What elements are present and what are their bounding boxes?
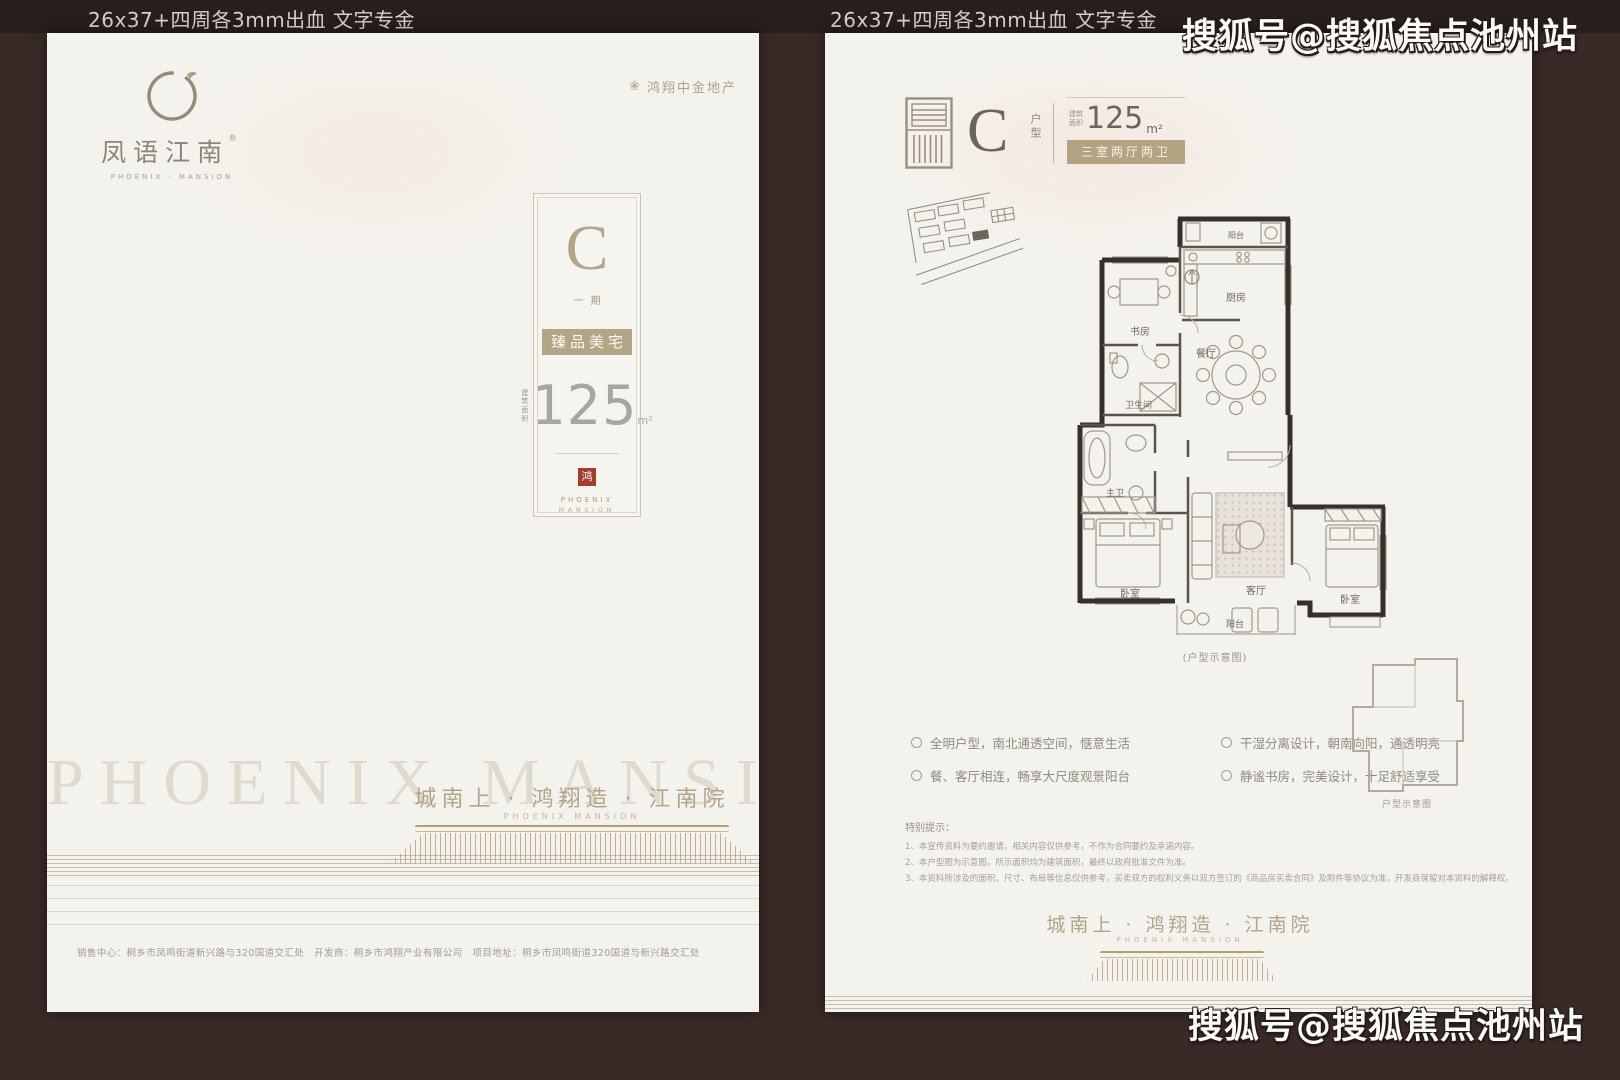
area-figure: 建筑 面积 125 m² — [534, 379, 640, 433]
brand-name: 凤语江南® — [92, 133, 252, 169]
floor-plan-caption: (户型示意图) — [1040, 649, 1390, 664]
roof-beam — [1100, 951, 1263, 958]
unit-type-label: 户型 — [1027, 113, 1043, 141]
area-unit: m² — [1146, 122, 1163, 136]
header-area-block: 建筑 面积 125 m² 三室两厅两卫 — [1067, 97, 1185, 164]
room-label-bedroom-right: 卧室 — [1340, 593, 1360, 606]
room-label-study: 书房 — [1130, 325, 1150, 338]
brochure-cover-page: 凤语江南® PHOENIX · MANSION ❀ 鸿翔中金地产 C 一期 臻品… — [47, 33, 759, 1012]
disclaimer-line: 1、本宣传资料为要约邀请，相关内容仅供参考，不作为合同要约及承诺内容。 — [905, 839, 1511, 855]
feature-item: 全明户型，南北通透空间，惬意生活 — [911, 733, 1130, 752]
tagline-en: PHOENIX MANSION — [387, 812, 757, 821]
slogan-banner: 臻品美宅 — [542, 329, 632, 355]
disclaimer-block: 特别提示： 1、本宣传资料为要约邀请，相关内容仅供参考，不作为合同要约及承诺内容… — [905, 819, 1511, 887]
room-label-bedroom-left: 卧室 — [1120, 587, 1140, 600]
room-label-balcony-bottom: 阳台 — [1226, 618, 1244, 630]
floor-plan-drawing: 阳台 厨房 书房 卫生间 餐厅 主卫 卧室 客厅 卧室 阳台 — [1040, 205, 1390, 649]
site-plan-sketch — [901, 186, 1031, 291]
room-label-kitchen: 厨房 — [1226, 291, 1246, 304]
unit-letter: C — [534, 216, 640, 280]
red-seal-icon: 鸿 — [578, 468, 596, 486]
feature-item: 餐、客厅相连，畅享大尺度观景阳台 — [911, 766, 1130, 785]
area-unit: m² — [637, 414, 652, 427]
decorative-lines-dense — [47, 855, 759, 877]
room-label-living: 客厅 — [1246, 584, 1266, 597]
card-brand-en-1: PHOENIX — [534, 496, 640, 504]
disclaimer-title: 特别提示： — [905, 819, 1511, 834]
brand-logo: 凤语江南® PHOENIX · MANSION — [92, 65, 252, 181]
bullet-circle-icon — [1221, 737, 1232, 748]
bullet-circle-icon — [911, 737, 922, 748]
phase-label: 一期 — [534, 292, 640, 307]
area-label: 建筑 面积 — [521, 389, 528, 424]
room-layout-band: 三室两厅两卫 — [1067, 140, 1185, 164]
tagline-en: PHOENIX MANSION — [1005, 936, 1355, 944]
roof-tiles — [1087, 959, 1277, 981]
print-spec-label-left: 26x37+四周各3mm出血 文字专金 — [88, 4, 415, 33]
room-label-dining: 餐厅 — [1196, 347, 1216, 360]
room-label-bath: 卫生间 — [1125, 399, 1152, 411]
area-row: 建筑 面积 125 m² — [1067, 98, 1185, 140]
brand-name-en: PHOENIX · MANSION — [92, 173, 252, 181]
unit-outline-caption: 户型示意图 — [1345, 797, 1469, 810]
unit-letter: C — [967, 95, 1008, 167]
disclaimer-line: 2、本户型图为示意图，所示面积均为建筑面积，最终以政府批准文件为准。 — [905, 855, 1511, 871]
sohu-watermark-bottom: 搜狐号@搜狐焦点池州站 — [1188, 998, 1584, 1049]
unit-type-card: C 一期 臻品美宅 建筑 面积 125 m² 鸿 PHOENIX MANSION — [533, 193, 641, 517]
room-label-balcony-top: 阳台 — [1228, 230, 1244, 240]
address-footer: 销售中心：桐乡市凤鸣街道新兴路与320国道交汇处 开发商：桐乡市鸿翔产业有限公司… — [77, 945, 743, 959]
developer-name: 鸿翔中金地产 — [647, 77, 737, 96]
card-brand-en-2: MANSION — [534, 507, 640, 514]
registered-mark: ® — [229, 133, 243, 143]
print-spec-label-right: 26x37+四周各3mm出血 文字专金 — [830, 4, 1157, 33]
tagline: 城南上 · 鸿翔造 · 江南院 — [387, 781, 757, 813]
bullet-circle-icon — [911, 770, 922, 781]
decorative-lines-sparse — [47, 885, 759, 937]
ring-emblem-icon — [141, 65, 203, 127]
header-divider — [1053, 103, 1054, 163]
disclaimer-line: 3、本资料所涉及的面积、尺寸、布局等信息仅供参考，买卖双方的权利义务以双方签订的… — [905, 871, 1511, 887]
unit-outline-sketch — [1345, 655, 1469, 795]
area-value: 125 — [531, 379, 637, 433]
lattice-window-icon — [905, 97, 953, 169]
tagline: 城南上 · 鸿翔造 · 江南院 — [1005, 910, 1355, 937]
room-label-master-bath: 主卫 — [1106, 487, 1124, 499]
roof-beam — [415, 825, 728, 832]
flower-emblem-icon: ❀ — [629, 79, 642, 94]
area-label: 建筑 面积 — [1069, 110, 1083, 128]
area-value: 125 — [1086, 104, 1143, 134]
bullet-circle-icon — [1221, 770, 1232, 781]
card-divider — [555, 453, 619, 454]
developer-logo: ❀ 鸿翔中金地产 — [629, 77, 737, 96]
floorplan-page: C 户型 建筑 面积 125 m² 三室两厅两卫 — [825, 33, 1532, 1012]
sohu-watermark-top: 搜狐号@搜狐焦点池州站 — [1182, 8, 1578, 59]
roof-illustration — [1087, 951, 1277, 981]
